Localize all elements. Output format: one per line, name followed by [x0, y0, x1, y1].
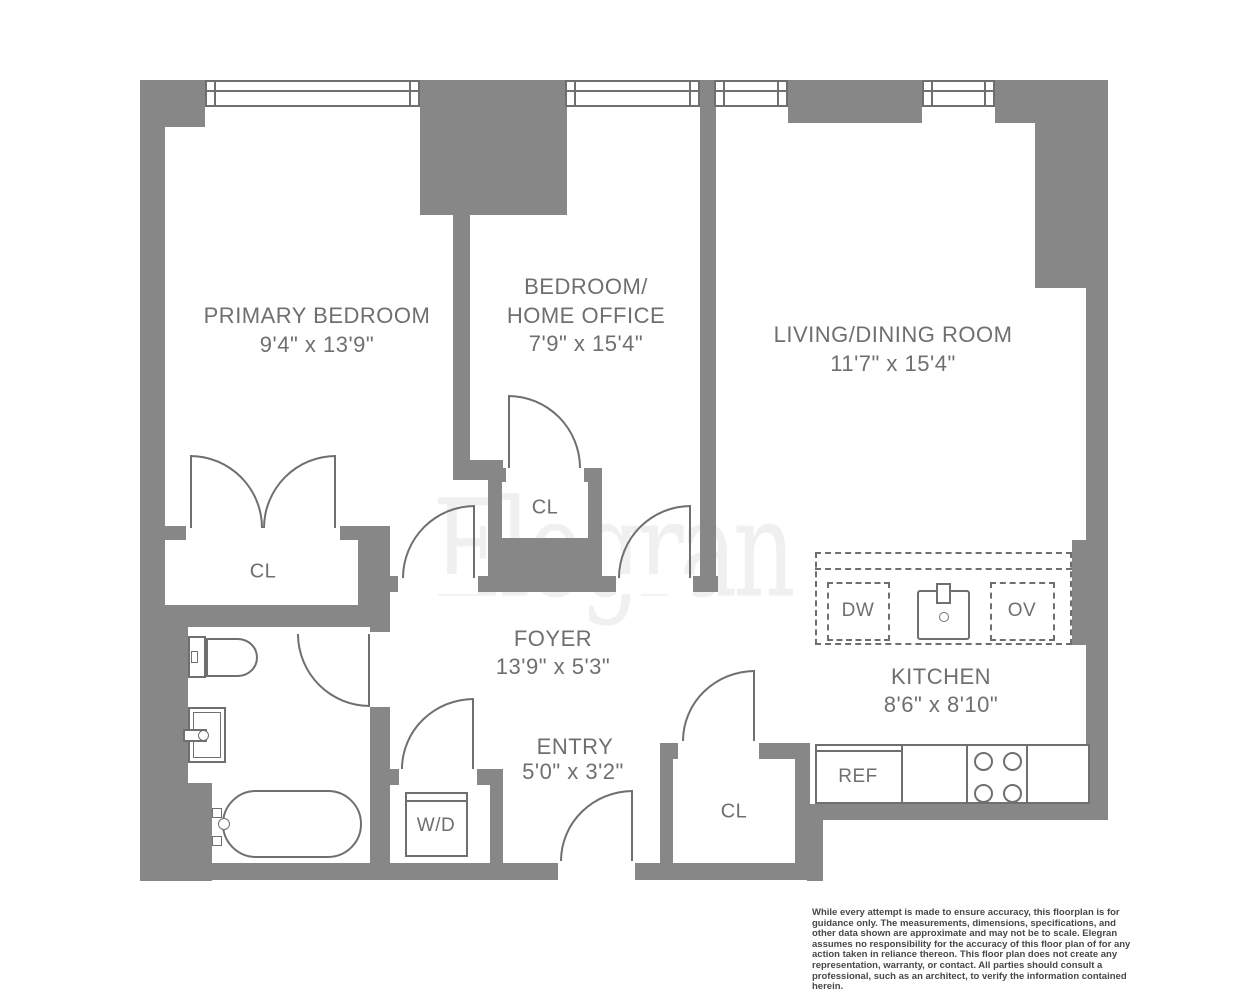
bathtub-faucet — [212, 808, 222, 818]
disclaimer-text: While every attempt is made to ensure ac… — [812, 908, 1138, 993]
window-cap — [777, 82, 779, 105]
room-dims-kitchen: 8'6" x 8'10" — [884, 692, 998, 718]
window-cap — [214, 82, 216, 105]
wall — [358, 526, 390, 611]
door-swing-bathroom — [297, 634, 370, 707]
toilet-flush-button — [191, 651, 198, 663]
room-label-kitchen: KITCHEN — [891, 664, 991, 690]
closet-label-entry: CL — [721, 801, 748, 824]
closet-label-office: CL — [532, 497, 559, 520]
door-swing-primary-closet-left — [190, 455, 263, 528]
door-swing-entry-closet — [682, 670, 755, 741]
refrigerator-divider — [901, 744, 903, 804]
stove-burner — [1003, 752, 1022, 771]
window-cap — [931, 82, 933, 105]
door-swing-primary-bedroom — [402, 505, 475, 578]
kitchen-island-overhang-line — [815, 568, 1072, 570]
window — [565, 80, 700, 107]
room-dims-foyer: 13'9" x 5'3" — [496, 654, 610, 680]
toilet-bowl — [206, 638, 258, 677]
bathtub — [222, 790, 362, 858]
door-opening — [399, 767, 477, 787]
wall — [140, 605, 390, 627]
room-label-living-dining: LIVING/DINING ROOM — [774, 322, 1013, 348]
wall — [660, 743, 673, 864]
closet-label-primary: CL — [250, 561, 277, 584]
door-opening — [370, 632, 390, 707]
refrigerator-door-line — [817, 750, 901, 752]
bathroom-faucet-knob — [198, 730, 209, 741]
wall — [815, 804, 1108, 820]
window — [205, 80, 420, 107]
stove-burner — [1003, 784, 1022, 803]
stove-burner — [974, 752, 993, 771]
bathtub-faucet — [212, 836, 222, 846]
floor-plan: Elegran — [0, 0, 1250, 1000]
washer-dryer-door-line — [407, 800, 466, 802]
door-swing-office-closet — [508, 395, 581, 468]
refrigerator-label: REF — [838, 766, 878, 788]
wall — [588, 468, 602, 545]
room-label-foyer: FOYER — [514, 626, 592, 652]
door-swing-primary-closet-right — [263, 455, 336, 528]
room-dims-living-dining: 11'7" x 15'4" — [830, 351, 956, 377]
door-opening — [506, 466, 584, 484]
room-label-home-office-line1: BEDROOM/ — [524, 274, 648, 300]
room-dims-entry: 5'0" x 3'2" — [522, 759, 624, 785]
room-dims-home-office: 7'9" x 15'4" — [529, 331, 643, 357]
window-cap — [723, 82, 725, 105]
window — [714, 80, 788, 107]
wall — [420, 80, 567, 215]
wall — [140, 863, 823, 880]
room-label-home-office-line2: HOME OFFICE — [507, 303, 665, 329]
kitchen-sink-faucet — [936, 583, 951, 604]
window-cap — [409, 82, 411, 105]
window-cap — [984, 82, 986, 105]
room-dims-primary-bedroom: 9'4" x 13'9" — [260, 332, 374, 358]
room-label-entry: ENTRY — [537, 734, 614, 760]
brand-watermark: Elegran — [433, 471, 792, 628]
wall — [788, 80, 922, 123]
room-label-primary-bedroom: PRIMARY BEDROOM — [204, 303, 431, 329]
stove-burner — [974, 784, 993, 803]
window — [922, 80, 995, 107]
window-cap — [689, 82, 691, 105]
window-cap — [574, 82, 576, 105]
window-pane-line — [924, 90, 993, 92]
door-opening — [558, 861, 635, 882]
wall — [1035, 80, 1108, 288]
wall — [140, 605, 188, 785]
wall — [1072, 540, 1090, 645]
door-swing-washer-dryer — [401, 698, 474, 769]
wall — [700, 80, 716, 590]
oven-label: OV — [1008, 600, 1036, 622]
wall — [140, 80, 165, 610]
door-opening — [678, 741, 759, 761]
door-swing-entry — [560, 790, 633, 861]
kitchen-sink-drain — [939, 612, 949, 622]
dishwasher-label: DW — [842, 600, 875, 622]
wall — [488, 468, 502, 545]
window-pane-line — [716, 90, 786, 92]
window-pane-line — [567, 90, 698, 92]
wall — [490, 769, 503, 864]
wall — [795, 743, 810, 864]
wall — [453, 215, 470, 480]
washer-dryer-label: W/D — [417, 815, 455, 837]
wall — [488, 538, 602, 592]
bathtub-spout — [218, 818, 230, 830]
window-pane-line — [207, 90, 418, 92]
